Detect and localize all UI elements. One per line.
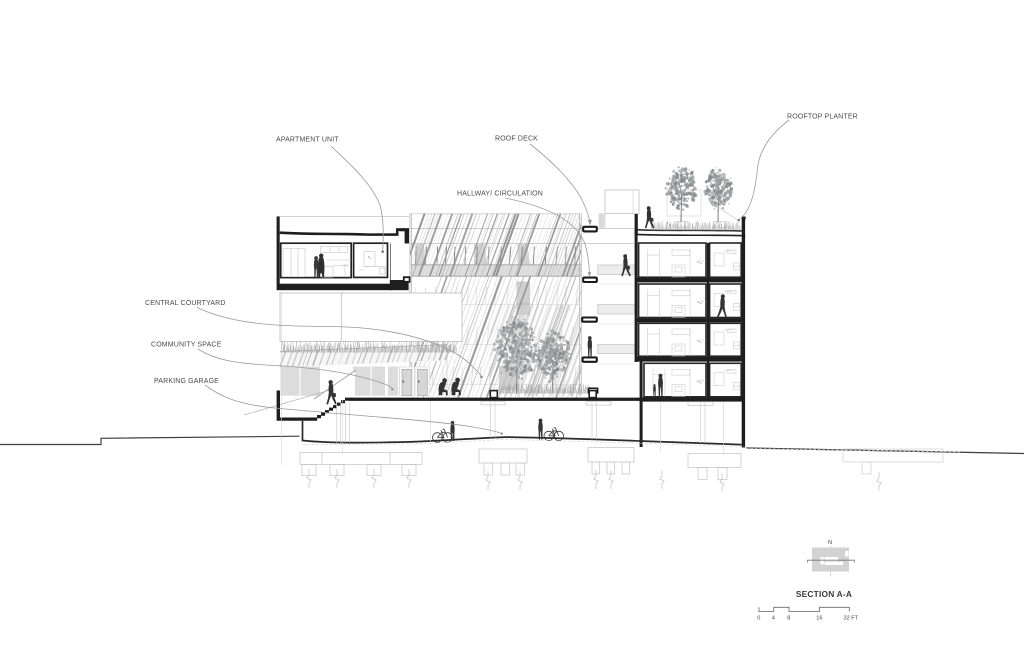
- svg-text:0: 0: [757, 616, 760, 622]
- svg-text:CENTRAL COURTYARD: CENTRAL COURTYARD: [145, 300, 226, 307]
- svg-text:ROOF DECK: ROOF DECK: [495, 136, 538, 143]
- svg-text:4: 4: [772, 616, 775, 622]
- svg-text:APARTMENT UNIT: APARTMENT UNIT: [276, 137, 339, 144]
- svg-text:HALLWAY/ CIRCULATION: HALLWAY/ CIRCULATION: [457, 191, 543, 198]
- svg-text:32 FT: 32 FT: [844, 616, 859, 622]
- svg-text:16: 16: [816, 616, 822, 622]
- svg-text:N: N: [828, 540, 832, 546]
- svg-text:COMMUNITY SPACE: COMMUNITY SPACE: [151, 342, 222, 349]
- svg-text:ROOFTOP PLANTER: ROOFTOP PLANTER: [787, 114, 858, 121]
- svg-text:SECTION A-A: SECTION A-A: [796, 589, 852, 599]
- svg-text:8: 8: [787, 616, 790, 622]
- svg-text:PARKING GARAGE: PARKING GARAGE: [154, 378, 219, 385]
